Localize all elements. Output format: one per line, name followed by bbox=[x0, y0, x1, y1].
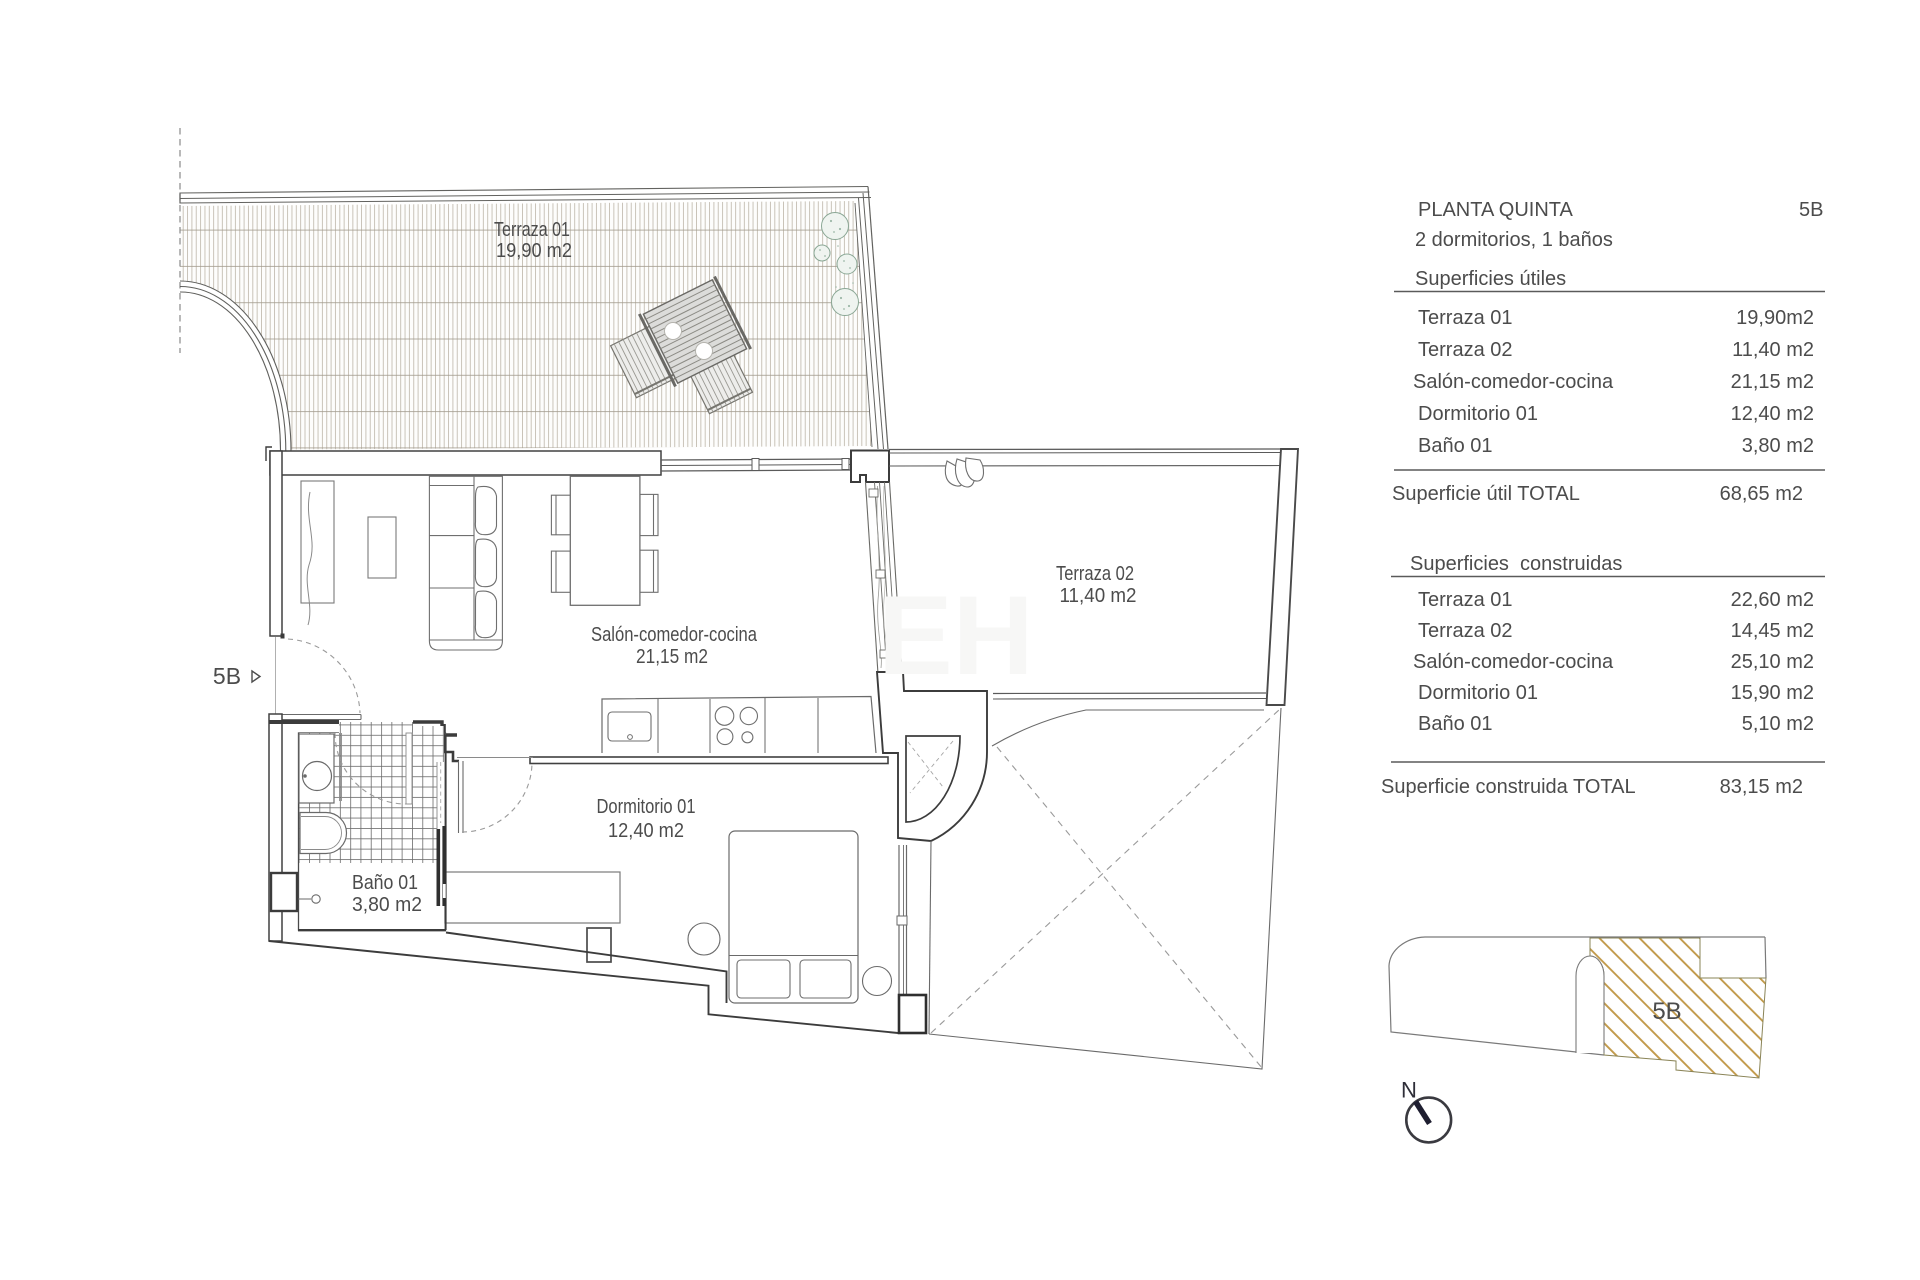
svg-text:15,90 m2: 15,90 m2 bbox=[1731, 682, 1814, 704]
svg-text:Terraza 01: Terraza 01 bbox=[1418, 589, 1513, 611]
svg-text:83,15 m2: 83,15 m2 bbox=[1720, 776, 1803, 798]
svg-text:Superficies construidas: Superficies construidas bbox=[1410, 553, 1622, 575]
svg-text:Terraza 02: Terraza 02 bbox=[1056, 563, 1134, 585]
svg-text:25,10 m2: 25,10 m2 bbox=[1731, 651, 1814, 673]
svg-text:5,10 m2: 5,10 m2 bbox=[1742, 713, 1814, 735]
svg-text:11,40 m2: 11,40 m2 bbox=[1732, 339, 1814, 361]
svg-text:5B: 5B bbox=[1799, 199, 1823, 221]
svg-text:Dormitorio 01: Dormitorio 01 bbox=[597, 796, 696, 818]
svg-text:19,90 m2: 19,90 m2 bbox=[496, 240, 572, 262]
svg-text:19,90m2: 19,90m2 bbox=[1736, 307, 1814, 329]
svg-text:Salón-comedor-cocina: Salón-comedor-cocina bbox=[1413, 651, 1614, 673]
svg-text:22,60 m2: 22,60 m2 bbox=[1731, 589, 1814, 611]
svg-text:11,40 m2: 11,40 m2 bbox=[1060, 585, 1137, 607]
svg-text:PLANTA QUINTA: PLANTA QUINTA bbox=[1418, 199, 1574, 221]
svg-text:5B: 5B bbox=[1652, 998, 1681, 1025]
svg-text:Superficies útiles: Superficies útiles bbox=[1415, 268, 1566, 290]
svg-text:14,45 m2: 14,45 m2 bbox=[1731, 620, 1814, 642]
svg-text:EH: EH bbox=[878, 573, 1034, 698]
svg-text:Superficie construida TOTAL: Superficie construida TOTAL bbox=[1381, 776, 1636, 798]
svg-text:Terraza 02: Terraza 02 bbox=[1418, 339, 1513, 361]
svg-text:Dormitorio 01: Dormitorio 01 bbox=[1418, 682, 1538, 704]
svg-text:Baño 01: Baño 01 bbox=[1418, 713, 1493, 735]
svg-text:2 dormitorios, 1 baños: 2 dormitorios, 1 baños bbox=[1415, 229, 1613, 251]
svg-text:Dormitorio 01: Dormitorio 01 bbox=[1418, 403, 1538, 425]
svg-text:12,40 m2: 12,40 m2 bbox=[608, 820, 684, 842]
svg-text:Salón-comedor-cocina: Salón-comedor-cocina bbox=[591, 624, 758, 646]
svg-text:N: N bbox=[1401, 1078, 1417, 1103]
svg-text:Salón-comedor-cocina: Salón-comedor-cocina bbox=[1413, 371, 1614, 393]
svg-text:Terraza 02: Terraza 02 bbox=[1418, 620, 1513, 642]
svg-text:68,65 m2: 68,65 m2 bbox=[1720, 483, 1803, 505]
svg-text:3,80 m2: 3,80 m2 bbox=[352, 894, 422, 916]
svg-text:5B: 5B bbox=[213, 663, 241, 689]
svg-text:Baño 01: Baño 01 bbox=[352, 872, 418, 894]
svg-text:3,80 m2: 3,80 m2 bbox=[1742, 435, 1814, 457]
svg-text:21,15 m2: 21,15 m2 bbox=[1731, 371, 1814, 393]
svg-text:Terraza 01: Terraza 01 bbox=[1418, 307, 1513, 329]
svg-text:Superficie útil TOTAL: Superficie útil TOTAL bbox=[1392, 483, 1580, 505]
svg-text:Baño 01: Baño 01 bbox=[1418, 435, 1493, 457]
svg-text:12,40 m2: 12,40 m2 bbox=[1731, 403, 1814, 425]
svg-text:21,15 m2: 21,15 m2 bbox=[636, 646, 708, 668]
svg-text:Terraza 01: Terraza 01 bbox=[494, 219, 570, 241]
